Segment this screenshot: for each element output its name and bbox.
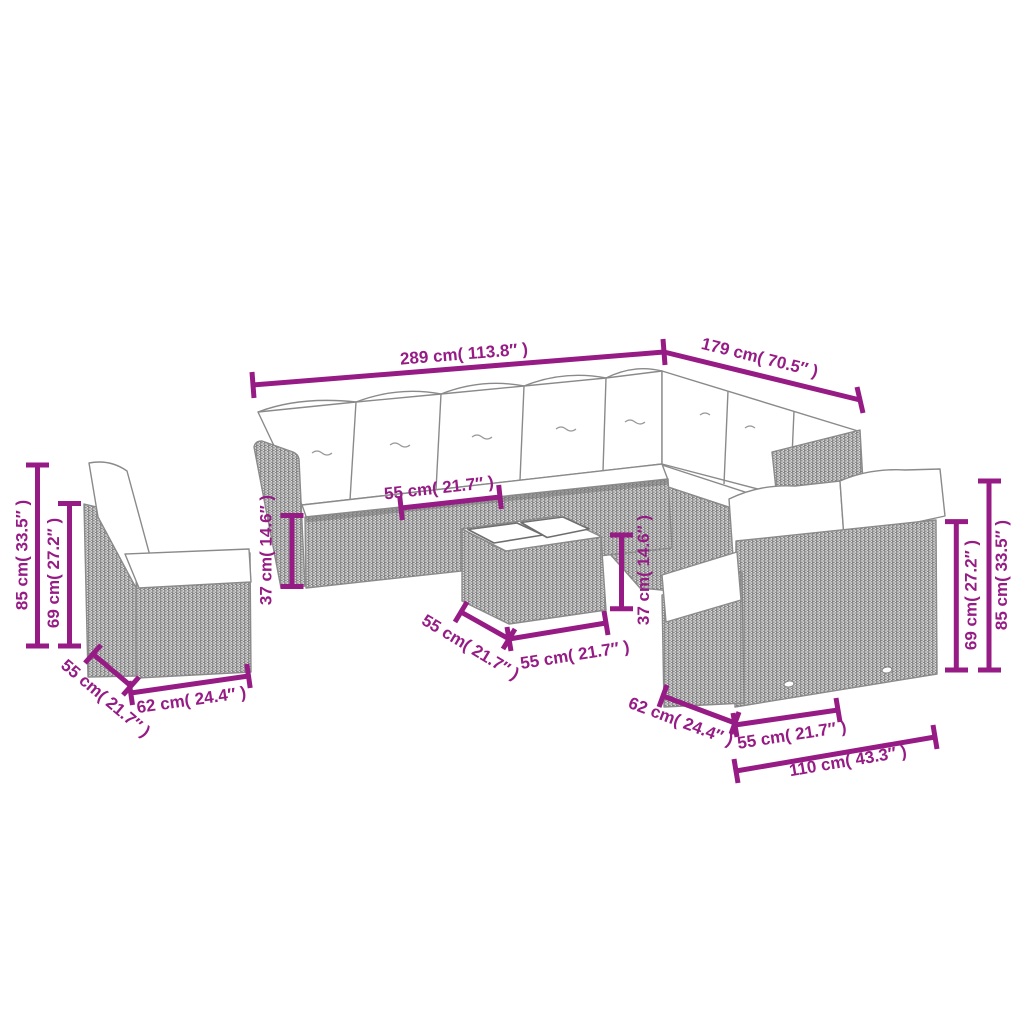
- svg-text:37 cm( 14.6″ ): 37 cm( 14.6″ ): [634, 515, 653, 625]
- svg-text:69 cm( 27.2″ ): 69 cm( 27.2″ ): [44, 518, 63, 628]
- svg-text:85 cm( 33.5″ ): 85 cm( 33.5″ ): [12, 500, 31, 610]
- svg-text:37 cm( 14.6″ ): 37 cm( 14.6″ ): [256, 495, 275, 605]
- svg-text:69 cm( 27.2″ ): 69 cm( 27.2″ ): [961, 540, 980, 650]
- svg-text:85 cm( 33.5″ ): 85 cm( 33.5″ ): [992, 520, 1011, 630]
